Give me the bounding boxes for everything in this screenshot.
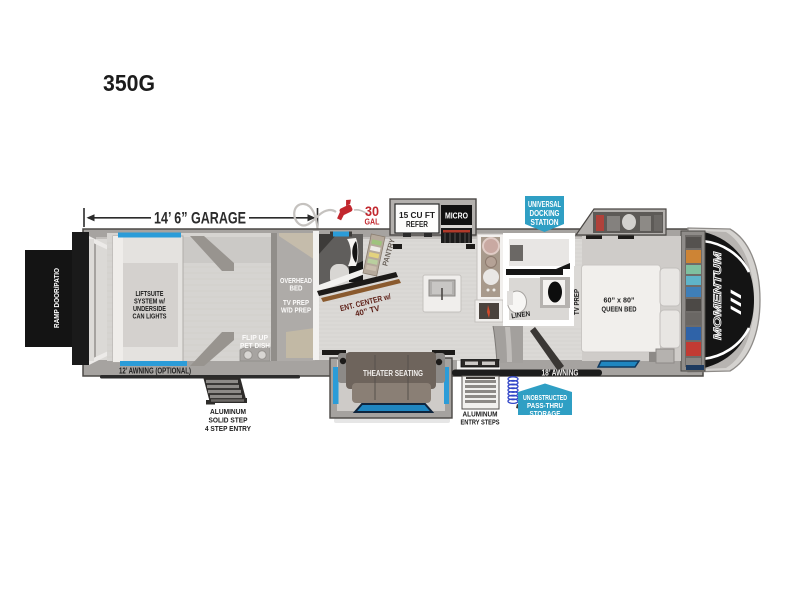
svg-text:MICRO: MICRO <box>445 211 468 221</box>
svg-text:RAMP DOOR/PATIO: RAMP DOOR/PATIO <box>52 268 61 328</box>
svg-text:4 STEP ENTRY: 4 STEP ENTRY <box>205 424 251 433</box>
svg-text:STORAGE: STORAGE <box>530 409 561 418</box>
svg-text:MOMENTUM: MOMENTUM <box>712 251 724 340</box>
svg-text:DOCKING: DOCKING <box>530 209 560 218</box>
svg-text:350G: 350G <box>103 70 155 96</box>
svg-text:STATION: STATION <box>531 218 559 227</box>
svg-text:GAL: GAL <box>365 218 380 227</box>
svg-text:THEATER SEATING: THEATER SEATING <box>363 369 423 378</box>
svg-text:QUEEN BED: QUEEN BED <box>602 305 637 314</box>
svg-text:TV PREP: TV PREP <box>283 300 309 307</box>
svg-text:REFER: REFER <box>406 220 428 229</box>
svg-text:18’ AWNING: 18’ AWNING <box>542 369 579 378</box>
svg-text:60” x 80”: 60” x 80” <box>604 296 635 305</box>
svg-text:W/D PREP: W/D PREP <box>281 308 311 315</box>
svg-text:BED: BED <box>290 286 303 293</box>
svg-text:PET DISH: PET DISH <box>240 341 270 350</box>
svg-text:ENTRY STEPS: ENTRY STEPS <box>461 418 500 427</box>
svg-text:OVERHEAD: OVERHEAD <box>280 278 312 285</box>
svg-text:CAN LIGHTS: CAN LIGHTS <box>133 312 167 321</box>
svg-text:UNIVERSAL: UNIVERSAL <box>528 200 561 209</box>
svg-text:14’ 6” GARAGE: 14’ 6” GARAGE <box>154 209 246 228</box>
svg-text:TV PREP: TV PREP <box>574 289 581 315</box>
svg-text:15 CU FT: 15 CU FT <box>399 211 435 220</box>
svg-text:12’ AWNING (OPTIONAL): 12’ AWNING (OPTIONAL) <box>119 367 191 376</box>
